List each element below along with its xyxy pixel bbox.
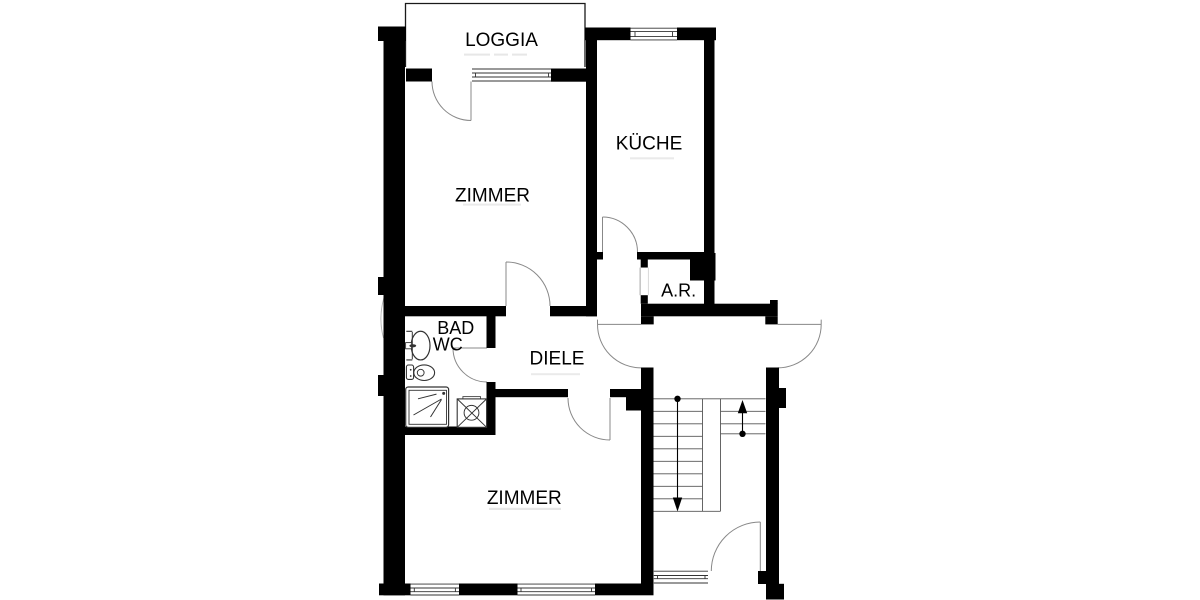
svg-text:ZIMMER: ZIMMER [455,186,530,207]
svg-text:WC: WC [433,335,463,355]
svg-text:KÜCHE: KÜCHE [616,134,683,155]
svg-text:ZIMMER: ZIMMER [487,488,562,509]
svg-text:A.R.: A.R. [661,281,696,301]
svg-text:LOGGIA: LOGGIA [465,30,538,51]
svg-text:DIELE: DIELE [530,349,585,370]
